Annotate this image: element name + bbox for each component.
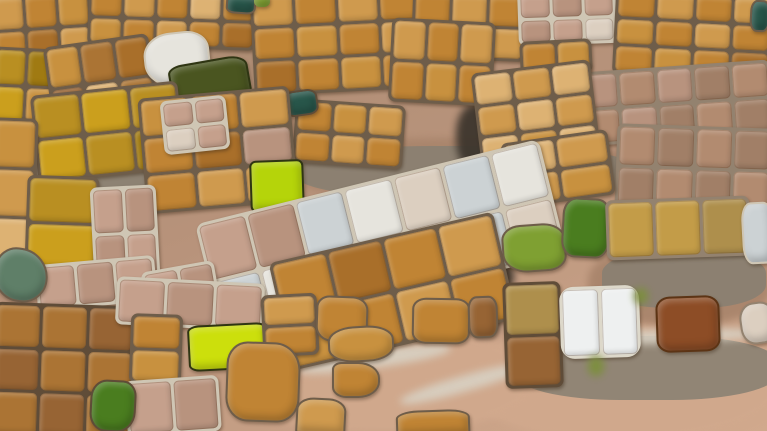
salt-pond-cell — [491, 143, 550, 207]
triangle-pond-bottom — [332, 362, 380, 398]
salt-pond-cell — [0, 120, 36, 167]
salt-pond-cell — [657, 128, 694, 167]
salt-pond-cell — [0, 348, 39, 390]
salt-pond-cell — [81, 89, 130, 133]
salt-pond-cell — [619, 126, 656, 165]
salt-pond-cell — [93, 189, 124, 233]
salt-pond-cell — [197, 168, 247, 207]
salt-pond-cell — [555, 94, 594, 127]
red-brown-pond-bottom-right — [655, 295, 721, 353]
edge-pond-bottom-b — [396, 409, 471, 431]
salt-pond-cell — [618, 0, 655, 18]
salt-pond-cell — [438, 215, 502, 276]
salt-pond-cell — [333, 104, 368, 134]
dark-pond-bottom-center — [467, 295, 498, 338]
salt-pond-cell — [655, 200, 701, 256]
salt-pond-cell — [656, 68, 693, 103]
salt-pond-cell — [507, 336, 561, 386]
salt-pond-cell — [442, 155, 501, 219]
salt-pond-cell — [124, 187, 155, 231]
salt-pond-cell — [39, 394, 84, 431]
salt-pond-cell — [124, 0, 155, 17]
salt-pond-cell — [42, 306, 87, 348]
salt-pond-cell — [190, 0, 221, 19]
salt-pond-cell — [551, 62, 590, 95]
salt-pond-cell — [337, 0, 378, 22]
salt-pond-cell — [513, 67, 552, 100]
salt-pond-cell — [391, 61, 424, 100]
salt-pond-cell — [331, 134, 366, 164]
salt-pond-cell — [297, 25, 338, 58]
teal-pond-top-right — [749, 0, 767, 33]
swirl-pair-bottom — [124, 375, 222, 431]
dark-green-pond — [560, 197, 611, 259]
orange-pair-bottom-left — [129, 313, 183, 385]
salt-pond-cell — [46, 46, 82, 87]
light-green-pond — [500, 222, 567, 274]
salt-pond-cell — [25, 0, 56, 28]
salt-pond-cell — [585, 17, 615, 40]
salt-pond-cell — [295, 132, 329, 162]
salt-pond-cell — [298, 58, 339, 91]
grass-tuft-a — [588, 356, 604, 376]
khaki-pond-row-right — [605, 196, 751, 261]
salt-pond-cell — [393, 167, 452, 231]
salt-pond-cell — [222, 22, 253, 48]
salt-pond-cell — [0, 49, 25, 84]
salt-pond-cell — [264, 296, 315, 325]
salt-pond-cell — [552, 0, 582, 17]
salt-pond-cell — [427, 22, 460, 61]
salt-pond-cell — [608, 202, 654, 258]
white-pond-pair-bottom-right — [559, 285, 641, 360]
grass-tuft-b — [634, 288, 648, 304]
salt-pond-cell — [460, 24, 493, 63]
salt-pond-cell — [584, 0, 614, 15]
salt-pond-aerial-photo — [0, 0, 767, 431]
round-pond-b — [412, 297, 471, 344]
white-pond-right-edge — [740, 201, 767, 265]
teal-pond-top-edge — [225, 0, 256, 15]
edge-pond-bottom-a — [295, 397, 347, 431]
swirl-grid-mid-left — [159, 95, 230, 156]
salt-pond-cell — [505, 284, 559, 334]
salt-pond-cell — [657, 0, 694, 20]
salt-pond-cell — [41, 350, 86, 392]
salt-pond-cell — [80, 41, 116, 82]
salt-pond-cell — [474, 72, 513, 105]
salt-pond-cell — [0, 0, 24, 30]
salt-pond-cell — [295, 0, 336, 24]
salt-pond-cell — [619, 71, 656, 106]
salt-pond-cell — [173, 378, 219, 431]
salt-pond-cell — [76, 262, 115, 305]
salt-pond-cell — [0, 86, 23, 121]
salt-pond-cell — [0, 305, 41, 347]
salt-pond-cell — [555, 132, 608, 167]
salt-pond-cell — [340, 56, 381, 89]
salt-pond-cell — [732, 63, 767, 98]
salt-pond-cell — [194, 98, 225, 123]
salt-pond-cell — [197, 123, 228, 148]
salt-pond-cell — [520, 0, 550, 18]
dark-green-pond-bottom-left — [89, 379, 138, 431]
salt-pond-cell — [368, 106, 403, 136]
salt-pond-cell — [165, 127, 196, 152]
salt-pond-cell — [33, 94, 82, 138]
salt-pond-cell — [57, 0, 88, 25]
salt-pond-cell — [366, 137, 401, 167]
salt-pond-cell — [91, 0, 122, 16]
salt-pond-cell — [734, 130, 767, 169]
salt-pond-cell — [695, 0, 732, 22]
salt-pond-cell — [38, 136, 87, 180]
khaki-stack-bottom-right — [502, 281, 564, 389]
salt-pond-cell — [0, 392, 38, 431]
salt-pond-cell — [239, 89, 289, 128]
salt-pond-cell — [29, 178, 96, 223]
big-pond-bottom-center — [225, 341, 302, 424]
salt-pond-cell — [516, 99, 555, 132]
salt-pond-cell — [393, 20, 426, 59]
salt-pond-cell — [86, 131, 135, 175]
salt-pond-cell — [694, 65, 731, 100]
salt-pond-cell — [696, 129, 733, 168]
salt-pond-cell — [694, 23, 731, 50]
salt-pond-cell — [133, 316, 180, 348]
salt-pond-cell — [600, 288, 638, 355]
salt-pond-cell — [254, 27, 295, 60]
salt-pond-cell — [339, 23, 380, 56]
salt-pond-cell — [478, 103, 517, 136]
salt-pond-cell — [157, 0, 188, 18]
salt-pond-cell — [425, 63, 458, 102]
salt-pond-cell — [655, 21, 692, 48]
salt-pond-cell — [562, 289, 600, 356]
salt-pond-cell — [163, 101, 194, 126]
salt-pond-cell — [616, 19, 653, 46]
salt-pond-cell — [560, 163, 613, 198]
salt-pond-cell — [383, 228, 447, 289]
salt-pond-cell — [327, 241, 391, 302]
